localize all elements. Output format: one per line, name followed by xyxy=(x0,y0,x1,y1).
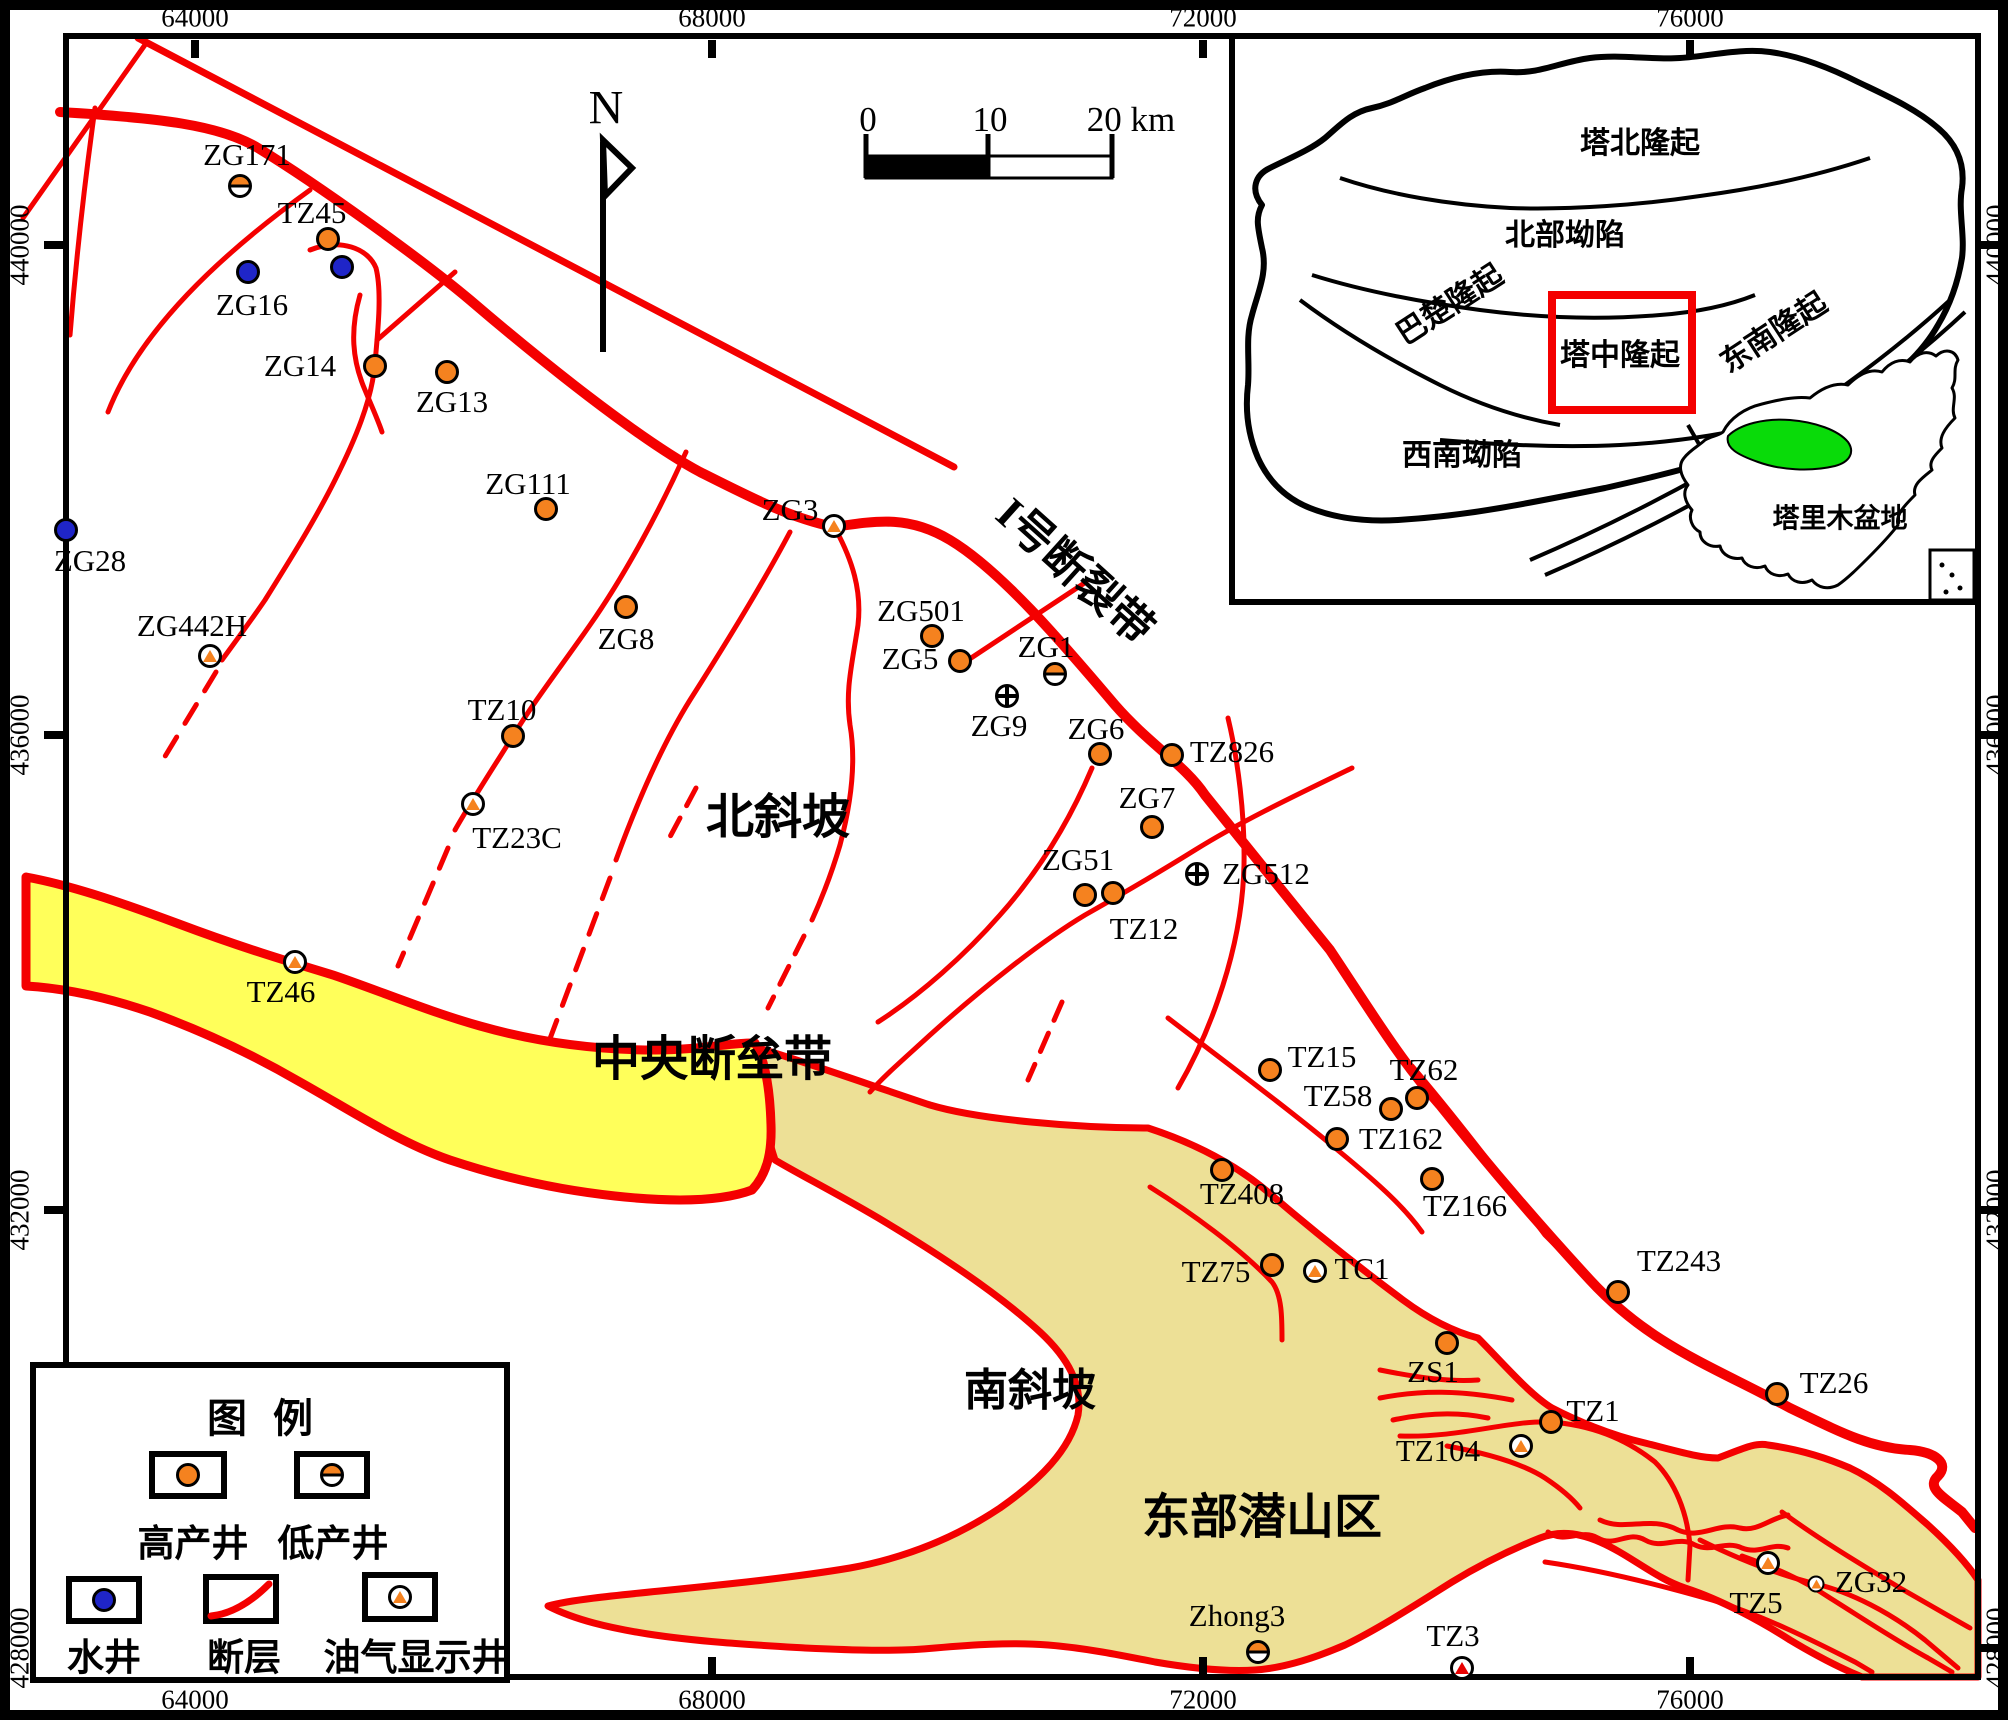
well-marker-TZ162[interactable] xyxy=(1325,1127,1349,1151)
well-label-ZG7: ZG7 xyxy=(1119,780,1176,816)
fault-line-dashed xyxy=(158,672,216,768)
axis-label-bottom: 68000 xyxy=(678,1685,746,1716)
well-label-TZ3: TZ3 xyxy=(1426,1618,1479,1654)
well-marker-TC1[interactable] xyxy=(1303,1259,1327,1283)
well-label-TZ162: TZ162 xyxy=(1359,1121,1443,1157)
inset-label-beibu: 北部坳陷 xyxy=(1505,210,1625,254)
well-label-TZ826: TZ826 xyxy=(1190,734,1274,770)
scalebar-twenty-label: 20 km xyxy=(1087,100,1175,140)
well-label-ZG14: ZG14 xyxy=(264,348,336,384)
well-label-ZG501: ZG501 xyxy=(877,593,965,629)
well-label-TZ15: TZ15 xyxy=(1288,1039,1357,1075)
well-marker-TZ46[interactable] xyxy=(283,950,307,974)
axis-label-bottom: 76000 xyxy=(1656,1685,1724,1716)
axis-tick xyxy=(708,40,716,58)
well-label-TZ5: TZ5 xyxy=(1729,1585,1782,1621)
well-label-TZ408: TZ408 xyxy=(1200,1176,1284,1212)
well-label-TZ75: TZ75 xyxy=(1182,1254,1251,1290)
well-marker-TZ23C[interactable] xyxy=(461,792,485,816)
well-label-TZ62: TZ62 xyxy=(1390,1052,1459,1088)
well-marker-Zhong3[interactable] xyxy=(1246,1640,1270,1664)
well-marker-TZ26[interactable] xyxy=(1765,1382,1789,1406)
well-label-TZ45: TZ45 xyxy=(278,195,347,231)
well-marker-ZG9[interactable] xyxy=(995,684,1019,708)
oil-gas-show-well-icon xyxy=(388,1585,412,1609)
well-marker-TZ104[interactable] xyxy=(1509,1434,1533,1458)
inset-label-xinan: 西南坳陷 xyxy=(1402,430,1522,474)
well-marker-TZ1[interactable] xyxy=(1539,1410,1563,1434)
well-marker-TZ5[interactable] xyxy=(1756,1551,1780,1575)
legend: 图 例 高产井 低产井 水井 断层 油气显示井 xyxy=(30,1362,510,1683)
fault-line xyxy=(138,38,954,467)
north-label: N xyxy=(589,81,624,136)
well-label-TZ243: TZ243 xyxy=(1637,1243,1721,1279)
axis-label-bottom: 72000 xyxy=(1169,1685,1237,1716)
north-arrow xyxy=(603,140,632,352)
well-marker-ZG28[interactable] xyxy=(54,518,78,542)
axis-tick xyxy=(44,241,64,249)
well-marker-TZ3[interactable] xyxy=(1450,1656,1474,1680)
fault-line-dashed xyxy=(1028,1002,1062,1080)
well-label-ZG6: ZG6 xyxy=(1068,711,1125,747)
well-marker-ZG16[interactable] xyxy=(236,260,260,284)
well-label-TZ58: TZ58 xyxy=(1304,1078,1373,1114)
well-marker-TZ15[interactable] xyxy=(1258,1058,1282,1082)
scalebar-zero-label: 0 xyxy=(859,100,877,140)
well-marker-ZG512[interactable] xyxy=(1185,862,1209,886)
axis-tick xyxy=(1199,40,1207,58)
scale-bar xyxy=(866,134,1112,178)
low-yield-well-icon xyxy=(320,1463,344,1487)
well-label-ZG28: ZG28 xyxy=(54,543,126,579)
well-marker-TZ826[interactable] xyxy=(1160,743,1184,767)
axis-label-right: 440000 xyxy=(1981,205,2008,286)
well-marker-ZG5[interactable] xyxy=(948,649,972,673)
axis-label-top: 64000 xyxy=(161,3,229,34)
well-label-TZ23C: TZ23C xyxy=(472,820,562,856)
well-marker-ZG32[interactable] xyxy=(1808,1576,1825,1593)
well-label-TZ104: TZ104 xyxy=(1396,1433,1480,1469)
well-label-TZ166: TZ166 xyxy=(1423,1188,1507,1224)
legend-label-fault: 断层 xyxy=(207,1627,281,1681)
axis-tick xyxy=(44,731,64,739)
axis-label-bottom: 64000 xyxy=(161,1685,229,1716)
axis-tick xyxy=(1686,1657,1694,1675)
well-label-ZG3: ZG3 xyxy=(762,492,819,528)
map-screenshot: N 0 10 20 km 塔北隆起 北部坳陷 巴楚隆起 塔中隆起 东南隆起 西南… xyxy=(0,0,2008,1720)
fault-line-dashed xyxy=(768,936,804,1008)
well-label-TZ46: TZ46 xyxy=(247,974,316,1010)
inset-label-tarim-basin: 塔里木盆地 xyxy=(1773,497,1908,536)
well-label-ZS1: ZS1 xyxy=(1407,1354,1459,1390)
axis-label-right: 428000 xyxy=(1981,1608,2008,1689)
well-label-TZ12: TZ12 xyxy=(1110,911,1179,947)
well-label-ZG16: ZG16 xyxy=(216,287,288,323)
well-marker-ZG7[interactable] xyxy=(1140,815,1164,839)
well-marker-ZS1[interactable] xyxy=(1435,1331,1459,1355)
inset-label-tazhong: 塔中隆起 xyxy=(1560,330,1680,374)
well-marker-TZ243[interactable] xyxy=(1606,1280,1630,1304)
legend-label-low: 低产井 xyxy=(278,1513,389,1567)
well-label-ZG512: ZG512 xyxy=(1222,856,1310,892)
inset-label-tabei: 塔北隆起 xyxy=(1580,118,1700,162)
region-label: 北斜坡 xyxy=(706,777,850,847)
well-label-ZG442H: ZG442H xyxy=(137,608,247,644)
axis-label-left: 440000 xyxy=(5,205,36,286)
well-label-ZG13: ZG13 xyxy=(416,384,488,420)
well-label-ZG111: ZG111 xyxy=(485,466,571,502)
well-label-TC1: TC1 xyxy=(1334,1251,1389,1287)
scalebar-ten-label: 10 xyxy=(973,100,1008,140)
fault-line-dashed xyxy=(664,788,696,848)
axis-label-left: 432000 xyxy=(5,1170,36,1251)
legend-title: 图 例 xyxy=(207,1386,321,1444)
well-label-Zhong3: Zhong3 xyxy=(1189,1598,1285,1634)
well-label-ZG171: ZG171 xyxy=(203,137,291,173)
well-label-TZ10: TZ10 xyxy=(468,692,537,728)
axis-label-right: 432000 xyxy=(1981,1170,2008,1251)
axis-tick xyxy=(1686,40,1694,58)
well-marker-ZG171[interactable] xyxy=(228,174,252,198)
axis-label-top: 72000 xyxy=(1169,3,1237,34)
fault-line xyxy=(878,768,1092,1022)
well-marker-TZ58[interactable] xyxy=(1379,1097,1403,1121)
well-marker-TZ62[interactable] xyxy=(1405,1086,1429,1110)
well-marker-unnamed[interactable] xyxy=(330,255,354,279)
fault-line xyxy=(812,530,859,920)
legend-label-high: 高产井 xyxy=(138,1513,249,1567)
legend-label-show: 油气显示井 xyxy=(324,1627,509,1681)
axis-tick xyxy=(44,1206,64,1214)
well-label-ZG9: ZG9 xyxy=(971,708,1028,744)
axis-label-left: 436000 xyxy=(5,695,36,776)
region-label: 中央断垒带 xyxy=(592,1019,832,1089)
well-label-ZG5: ZG5 xyxy=(882,641,939,677)
well-label-TZ1: TZ1 xyxy=(1566,1393,1619,1429)
water-well-icon xyxy=(92,1588,116,1612)
fault-line xyxy=(377,272,455,340)
axis-label-right: 436000 xyxy=(1981,695,2008,776)
axis-tick xyxy=(1199,1657,1207,1675)
well-marker-ZG1[interactable] xyxy=(1043,662,1067,686)
well-marker-ZG442H[interactable] xyxy=(198,644,222,668)
high-yield-well-icon xyxy=(176,1463,200,1487)
fault-line-dashed xyxy=(398,848,448,966)
well-label-ZG51: ZG51 xyxy=(1042,842,1114,878)
well-label-ZG32: ZG32 xyxy=(1835,1564,1907,1600)
well-marker-ZG13[interactable] xyxy=(435,360,459,384)
axis-tick xyxy=(191,40,199,58)
well-label-TZ26: TZ26 xyxy=(1800,1365,1869,1401)
well-marker-ZG8[interactable] xyxy=(614,595,638,619)
well-marker-ZG51[interactable] xyxy=(1073,883,1097,907)
axis-label-top: 68000 xyxy=(678,3,746,34)
axis-label-top: 76000 xyxy=(1656,3,1724,34)
well-marker-ZG14[interactable] xyxy=(363,354,387,378)
well-marker-ZG3[interactable] xyxy=(822,514,846,538)
well-label-ZG1: ZG1 xyxy=(1018,629,1075,665)
well-marker-TZ12[interactable] xyxy=(1101,881,1125,905)
legend-label-water: 水井 xyxy=(67,1627,141,1681)
region-label: 东部潜山区 xyxy=(1142,1477,1382,1547)
axis-tick xyxy=(708,1657,716,1675)
well-marker-TZ75[interactable] xyxy=(1260,1253,1284,1277)
fault-icon xyxy=(203,1574,279,1624)
region-label: 南斜坡 xyxy=(964,1354,1096,1418)
well-label-ZG8: ZG8 xyxy=(598,621,655,657)
